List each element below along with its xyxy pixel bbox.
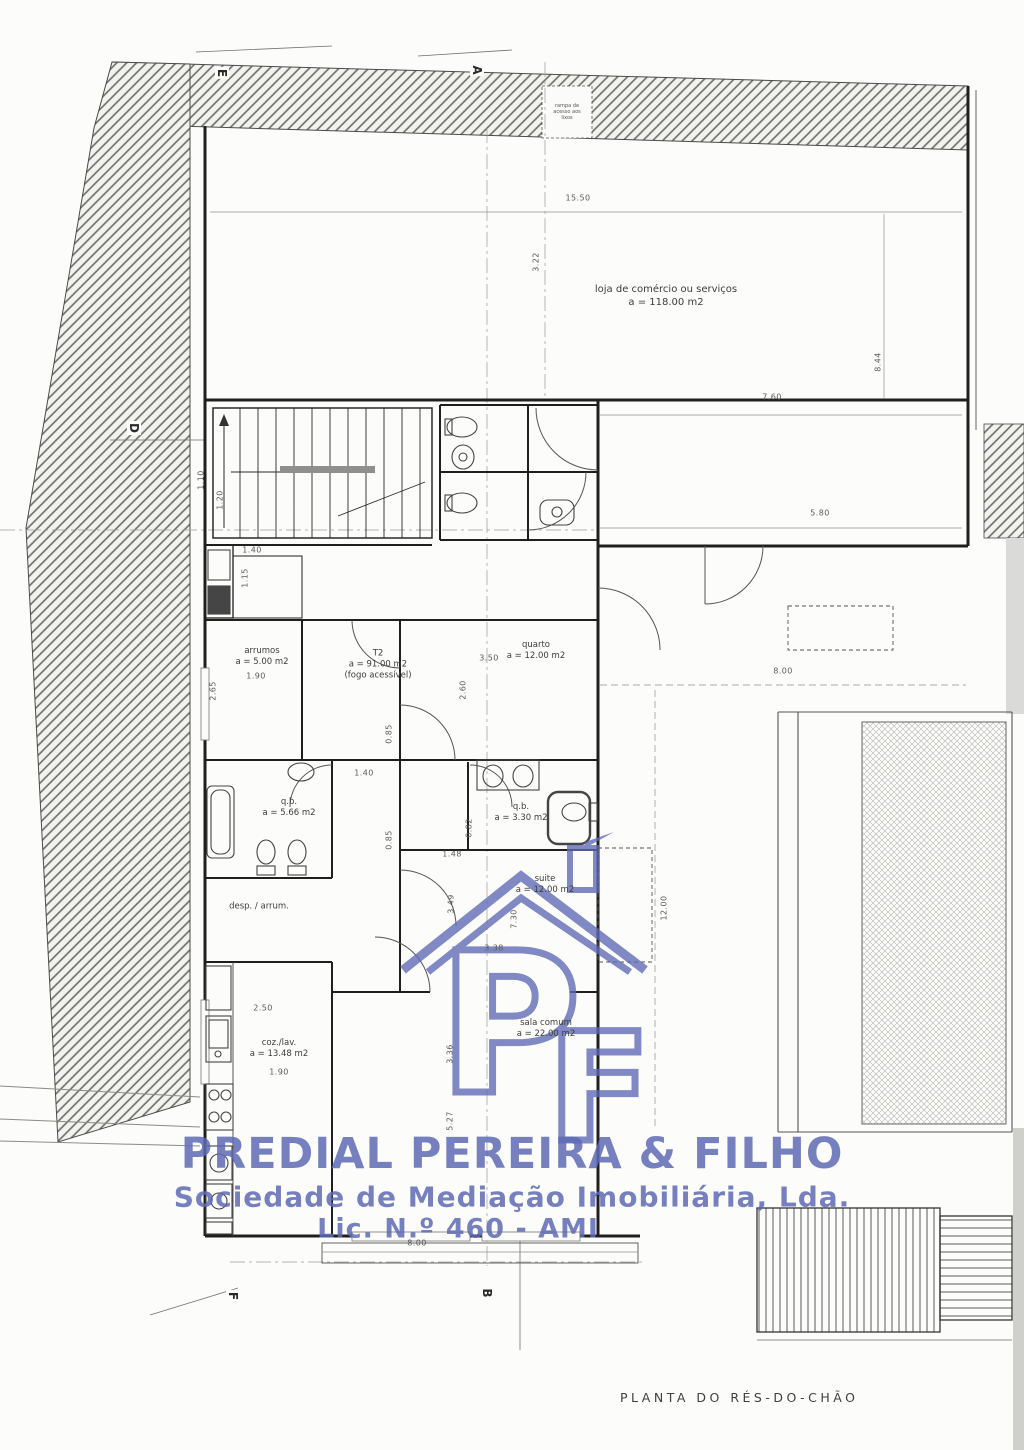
room-label-qb1: q.b. a = 5.66 m2 bbox=[262, 797, 315, 819]
room-name: suite bbox=[516, 874, 574, 885]
balcony-step bbox=[322, 1243, 638, 1263]
toilet-icon bbox=[562, 803, 586, 821]
dimension-label: 8.00 bbox=[773, 667, 792, 676]
watermark-company: PREDIAL PEREIRA & FILHO bbox=[181, 1129, 844, 1179]
room-note: (fogo acessível) bbox=[344, 671, 411, 682]
dimension-label: 0.85 bbox=[385, 830, 394, 849]
dimension-label: 12.00 bbox=[660, 896, 669, 921]
room-area: a = 3.30 m2 bbox=[494, 813, 547, 824]
ramp-note-line: lixos bbox=[553, 115, 580, 121]
section-marker-d: D bbox=[127, 421, 141, 435]
dimension-label: 1.20 bbox=[216, 490, 225, 509]
section-marker-b: B bbox=[480, 1286, 494, 1299]
dimension-label: 3.38 bbox=[484, 944, 503, 953]
dimension-label: 2.60 bbox=[459, 680, 468, 699]
room-name: arrumos bbox=[235, 646, 288, 657]
dimension-label: 0.82 bbox=[465, 818, 474, 837]
dimension-label: 0.85 bbox=[385, 724, 394, 743]
dimension-label: 7.30 bbox=[510, 909, 519, 928]
dimension-label: 1.15 bbox=[241, 568, 250, 587]
room-name: q.b. bbox=[262, 797, 315, 808]
room-area: a = 118.00 m2 bbox=[595, 296, 737, 309]
room-area: a = 13.48 m2 bbox=[250, 1049, 308, 1060]
room-label-qb2: q.b. a = 3.30 m2 bbox=[494, 802, 547, 824]
dimension-label: 1.40 bbox=[354, 769, 373, 778]
section-marker-e: E bbox=[215, 67, 229, 79]
dimension-label: 5.80 bbox=[810, 509, 829, 518]
room-area: a = 91.00 m2 bbox=[344, 659, 411, 670]
dimension-label: 3.22 bbox=[532, 252, 541, 271]
room-label-desp: desp. / arrum. bbox=[229, 901, 289, 912]
dimension-label: 1.40 bbox=[242, 546, 261, 555]
dimension-label: 1.10 bbox=[197, 470, 206, 489]
dimension-label: 7.60 bbox=[762, 393, 781, 402]
utility-equipment bbox=[208, 586, 230, 614]
courtyard-hatch bbox=[862, 722, 1006, 1124]
dimension-label: 1.90 bbox=[246, 672, 265, 681]
room-name: T2 bbox=[344, 648, 411, 659]
watermark-license: Lic. N.º 460 - AMI bbox=[317, 1214, 599, 1245]
room-area: a = 5.66 m2 bbox=[262, 808, 315, 819]
neighbor-corner-hatch bbox=[984, 424, 1024, 538]
ramp-note: rampa de acesso aos lixos bbox=[553, 103, 580, 121]
dimension-label: 1.90 bbox=[269, 1068, 288, 1077]
room-name: q.b. bbox=[494, 802, 547, 813]
bidet-icon bbox=[288, 840, 306, 864]
floor-plan-page: P F rampa de acesso aos lixos loja de co… bbox=[0, 0, 1024, 1450]
section-marker-f: F bbox=[226, 1290, 240, 1302]
room-name: sala comum bbox=[517, 1018, 575, 1029]
room-name: loja de comércio ou serviços bbox=[595, 283, 737, 296]
staircase bbox=[213, 408, 432, 538]
washbasin-icon bbox=[483, 765, 503, 787]
watermark-subtitle: Sociedade de Mediação Imobiliária, Lda. bbox=[174, 1181, 851, 1214]
room-label-loja: loja de comércio ou serviços a = 118.00 … bbox=[595, 283, 737, 309]
dimension-label: 2.50 bbox=[253, 1004, 272, 1013]
plan-caption: PLANTA DO RÉS-DO-CHÃO bbox=[620, 1390, 858, 1405]
room-area: a = 22.00 m2 bbox=[517, 1029, 575, 1040]
dimension-label: 2.65 bbox=[209, 681, 218, 700]
washbasin-icon bbox=[452, 445, 474, 469]
room-name: quarto bbox=[507, 640, 565, 651]
room-name: coz./lav. bbox=[250, 1038, 308, 1049]
room-area: a = 12.00 m2 bbox=[507, 651, 565, 662]
room-label-coz: coz./lav. a = 13.48 m2 bbox=[250, 1038, 308, 1060]
dimension-label: 3.49 bbox=[447, 894, 456, 913]
dimension-label: 3.36 bbox=[446, 1044, 455, 1063]
room-label-suite: suite a = 12.00 m2 bbox=[516, 874, 574, 896]
kitchen-sink-icon bbox=[206, 1016, 231, 1062]
room-area: a = 12.00 m2 bbox=[516, 885, 574, 896]
stair-handrail bbox=[280, 466, 375, 473]
dimension-label: 1.48 bbox=[442, 850, 461, 859]
room-label-t2: T2 a = 91.00 m2 (fogo acessível) bbox=[344, 648, 411, 681]
dimension-label: 8.44 bbox=[874, 352, 883, 371]
room-name: desp. / arrum. bbox=[229, 901, 289, 912]
dimension-label: 5.27 bbox=[446, 1111, 455, 1130]
toilet-icon bbox=[257, 840, 275, 864]
room-label-arrumos: arrumos a = 5.00 m2 bbox=[235, 646, 288, 668]
deck-structure bbox=[757, 1208, 1012, 1340]
room-area: a = 5.00 m2 bbox=[235, 657, 288, 668]
section-marker-a: A bbox=[470, 63, 484, 76]
room-label-sala: sala comum a = 22.00 m2 bbox=[517, 1018, 575, 1040]
dimension-label: 15.50 bbox=[566, 194, 591, 203]
room-label-quarto: quarto a = 12.00 m2 bbox=[507, 640, 565, 662]
washbasin-icon bbox=[513, 765, 533, 787]
dimension-label: 3.50 bbox=[479, 654, 498, 663]
